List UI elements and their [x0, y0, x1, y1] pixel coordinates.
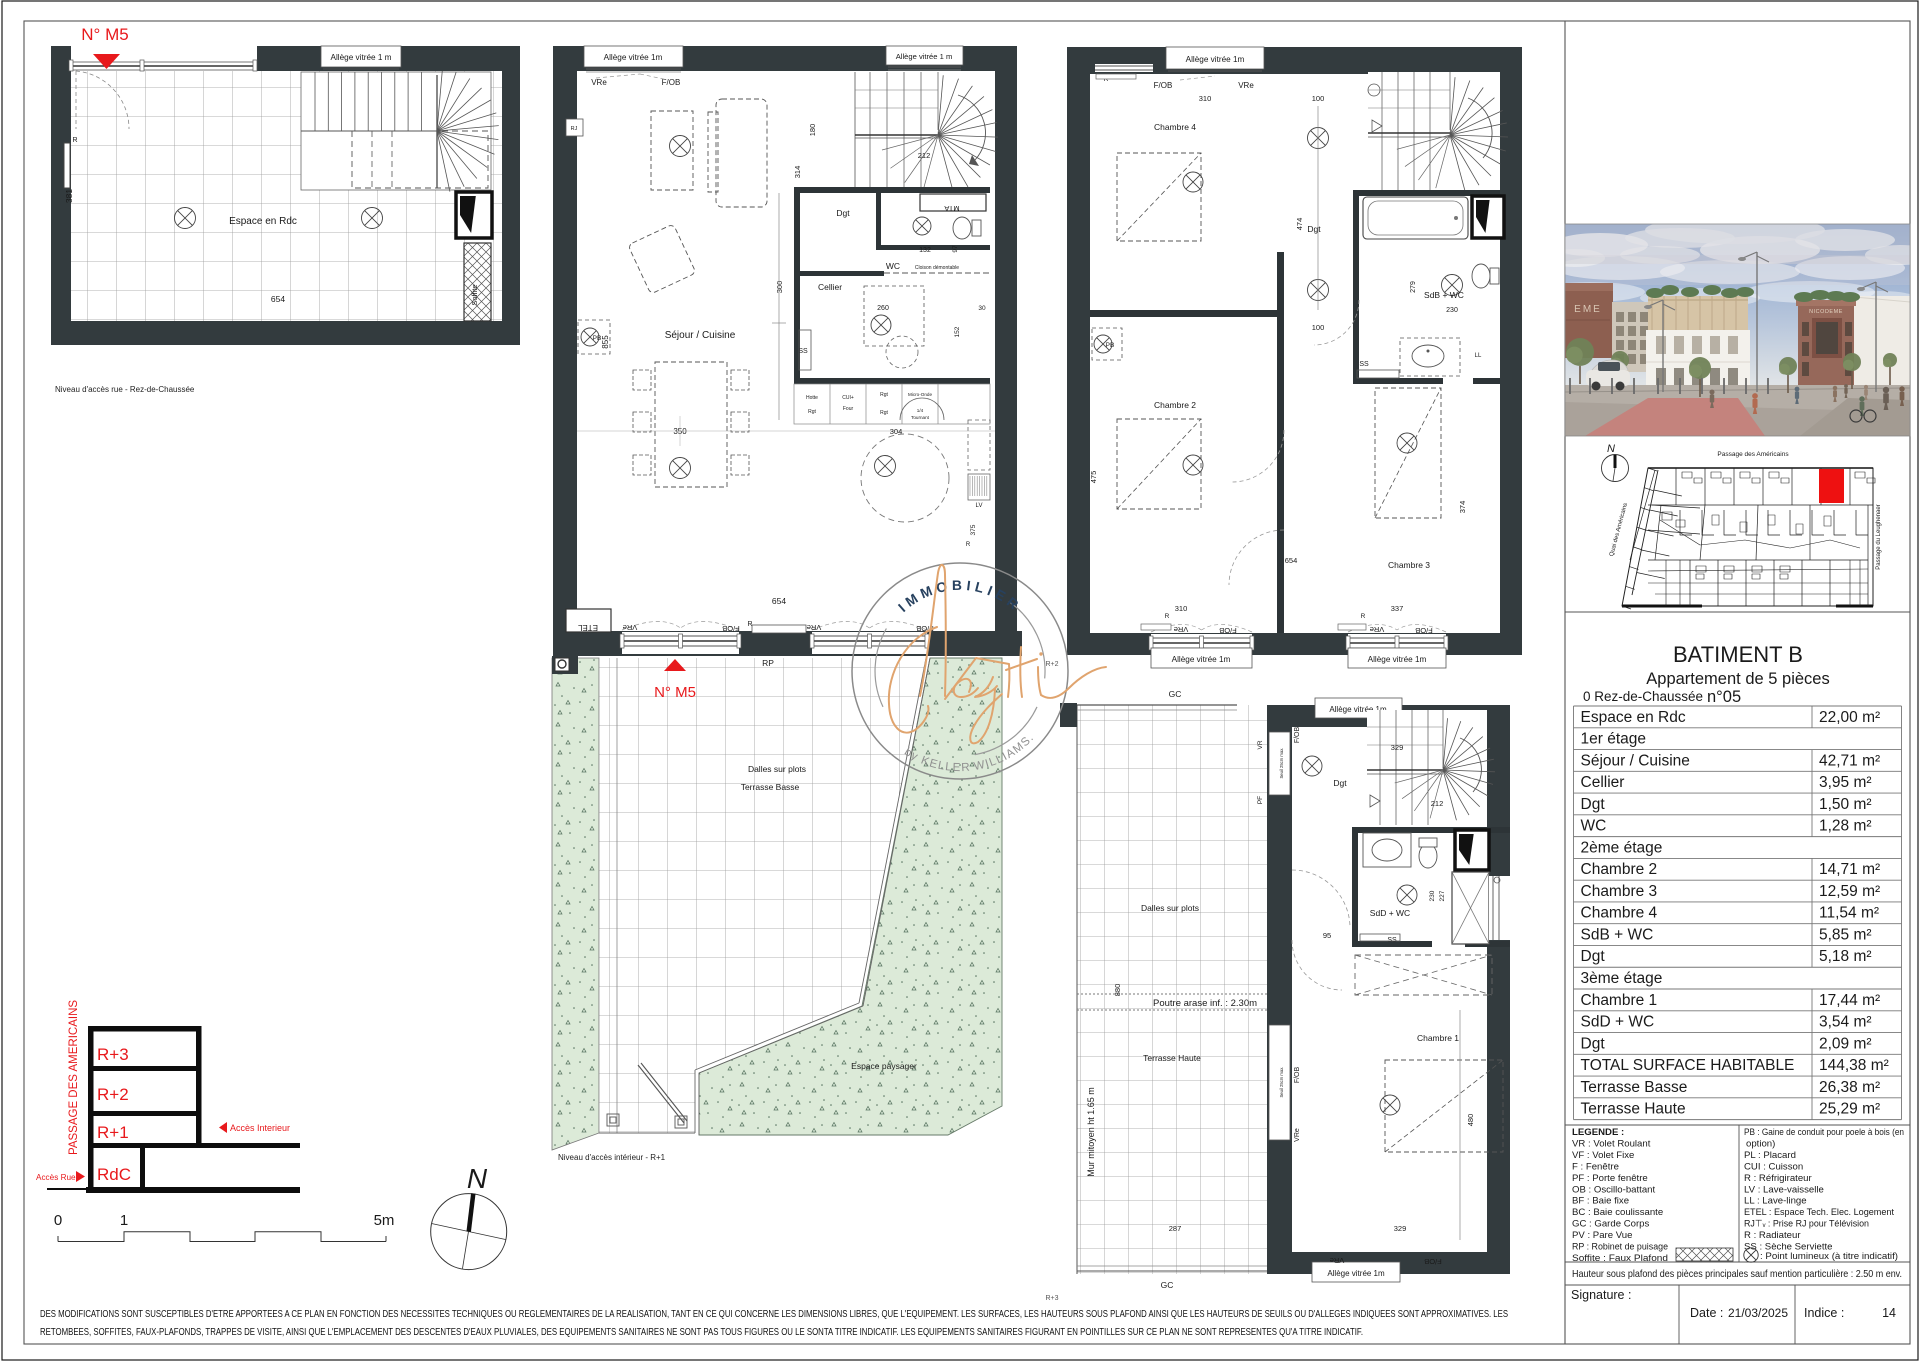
- svg-text:LV: LV: [976, 503, 983, 509]
- svg-text:Mur mitoyen ht 1.65 m: Mur mitoyen ht 1.65 m: [1086, 1087, 1096, 1177]
- svg-text:PB : Gaine de conduit pour poe: PB : Gaine de conduit pour poele à bois …: [1744, 1127, 1904, 1138]
- svg-text:1: 1: [120, 1212, 128, 1229]
- svg-text:F/OB: F/OB: [1219, 626, 1237, 635]
- svg-text:CUI+: CUI+: [842, 395, 854, 401]
- svg-text:PB: PB: [1106, 342, 1115, 349]
- svg-text:Cloison démontable: Cloison démontable: [915, 265, 959, 271]
- svg-text:Dgt: Dgt: [1307, 224, 1321, 234]
- svg-text:Séjour / Cuisine: Séjour / Cuisine: [1581, 752, 1690, 769]
- svg-text:SS: SS: [1387, 937, 1397, 944]
- svg-text:Niveau d'accès rue - Rez-de-Ch: Niveau d'accès rue - Rez-de-Chaussée: [55, 385, 195, 394]
- svg-text:Séjour / Cuisine: Séjour / Cuisine: [665, 330, 736, 341]
- svg-text:WC: WC: [886, 261, 900, 271]
- svg-text:Micro-Onde: Micro-Onde: [908, 392, 932, 397]
- svg-text:279: 279: [1410, 281, 1417, 293]
- svg-text:475: 475: [1089, 471, 1098, 484]
- svg-text:VRe: VRe: [1174, 625, 1189, 634]
- svg-text:: Point lumineux (à titre indi: : Point lumineux (à titre indicatif): [1760, 1250, 1898, 1261]
- svg-text:R+3: R+3: [1045, 1295, 1058, 1302]
- svg-text:97: 97: [952, 245, 959, 253]
- svg-text:Terrasse Basse: Terrasse Basse: [1581, 1079, 1688, 1096]
- svg-text:180: 180: [808, 124, 817, 137]
- svg-text:21/03/2025: 21/03/2025: [1728, 1306, 1788, 1320]
- svg-text:654: 654: [772, 596, 786, 606]
- svg-text:5,85 m²: 5,85 m²: [1819, 926, 1872, 943]
- svg-text:PF : Porte fenêtre: PF : Porte fenêtre: [1572, 1173, 1648, 1184]
- svg-text:SdD + WC: SdD + WC: [1581, 1014, 1655, 1031]
- svg-text:474: 474: [1295, 218, 1304, 231]
- svg-text:GC : Garde Corps: GC : Garde Corps: [1572, 1219, 1650, 1230]
- svg-text:5,18 m²: 5,18 m²: [1819, 948, 1872, 965]
- svg-text:R: R: [72, 137, 77, 144]
- svg-text:F : Fenêtre: F : Fenêtre: [1572, 1161, 1619, 1172]
- svg-text:Dgt: Dgt: [1581, 1035, 1606, 1052]
- svg-text:VRe: VRe: [807, 623, 822, 632]
- svg-text:Dalles sur plots: Dalles sur plots: [1141, 903, 1199, 913]
- svg-text:Accès Rue: Accès Rue: [36, 1173, 76, 1182]
- svg-text:LV : Lave-vaisselle: LV : Lave-vaisselle: [1744, 1184, 1824, 1195]
- svg-text:Chambre 1: Chambre 1: [1581, 992, 1658, 1009]
- svg-text:Seuil 25cm max.: Seuil 25cm max.: [1279, 748, 1284, 779]
- svg-text:Chambre 3: Chambre 3: [1388, 560, 1430, 570]
- svg-text:F/OB: F/OB: [1294, 1067, 1301, 1084]
- svg-text:350: 350: [673, 427, 687, 436]
- svg-text:N: N: [467, 1163, 488, 1194]
- svg-text:30: 30: [978, 305, 986, 312]
- svg-text:Allège vitrée 1 m: Allège vitrée 1 m: [896, 52, 953, 61]
- svg-text:314: 314: [793, 166, 802, 179]
- svg-text:212: 212: [918, 151, 931, 160]
- svg-text:VRe: VRe: [1238, 81, 1254, 90]
- svg-text:VRe: VRe: [1370, 625, 1385, 634]
- svg-text:212: 212: [1431, 799, 1444, 808]
- svg-text:Rgt: Rgt: [808, 409, 816, 415]
- svg-text:R : Réfrigirateur: R : Réfrigirateur: [1744, 1173, 1813, 1184]
- svg-text:DES MODIFICATIONS SONT SUSCEPT: DES MODIFICATIONS SONT SUSCEPTIBLES D'ET…: [40, 1309, 1508, 1320]
- svg-text:480: 480: [1466, 1114, 1475, 1127]
- svg-text:3,95 m²: 3,95 m²: [1819, 774, 1872, 791]
- svg-text:152: 152: [954, 326, 961, 337]
- svg-text:Soffite : Faux Plafond: Soffite : Faux Plafond: [1572, 1253, 1668, 1264]
- svg-text:VR: VR: [1257, 740, 1264, 749]
- svg-text:Dgt: Dgt: [1333, 778, 1347, 788]
- svg-text:Terrasse Haute: Terrasse Haute: [1581, 1101, 1686, 1118]
- svg-text:CUI : Cuisson: CUI : Cuisson: [1744, 1161, 1803, 1172]
- svg-text:Dgt: Dgt: [1581, 948, 1606, 965]
- svg-text:PV : Pare Vue: PV : Pare Vue: [1572, 1230, 1632, 1241]
- svg-text:TOTAL SURFACE HABITABLE: TOTAL SURFACE HABITABLE: [1581, 1057, 1795, 1074]
- svg-text:Appartement de 5 pièces: Appartement de 5 pièces: [1646, 670, 1829, 688]
- svg-text:14,71 m²: 14,71 m²: [1819, 861, 1880, 878]
- svg-text:VRe: VRe: [591, 78, 607, 87]
- svg-text:OB : Oscillo-battant: OB : Oscillo-battant: [1572, 1184, 1656, 1195]
- svg-text:Tournant: Tournant: [911, 415, 930, 420]
- svg-text:230: 230: [1429, 890, 1436, 901]
- svg-text:0 Rez-de-Chaussée: 0 Rez-de-Chaussée: [1583, 689, 1703, 704]
- svg-text:0: 0: [54, 1212, 62, 1229]
- svg-text:F/OB: F/OB: [1415, 626, 1433, 635]
- svg-text:Hauteur sous plafond des pièce: Hauteur sous plafond des pièces principa…: [1572, 1269, 1902, 1280]
- svg-text:R+2: R+2: [97, 1085, 129, 1104]
- svg-text:310: 310: [1199, 94, 1212, 103]
- svg-text:SS: SS: [1359, 361, 1369, 368]
- svg-text:MTA: MTA: [944, 204, 959, 213]
- svg-text:Dgt: Dgt: [836, 208, 850, 218]
- svg-text:654: 654: [271, 294, 285, 304]
- svg-text:880: 880: [1113, 984, 1122, 997]
- svg-text:GC: GC: [1169, 689, 1182, 699]
- svg-text:Rgt: Rgt: [880, 392, 888, 398]
- svg-text:SdD + WC: SdD + WC: [1370, 908, 1410, 918]
- svg-text:Chambre 4: Chambre 4: [1154, 122, 1196, 132]
- svg-text:R: R: [1165, 613, 1170, 620]
- svg-text:F/OB: F/OB: [662, 78, 681, 87]
- svg-text:SdB + WC: SdB + WC: [1581, 926, 1654, 943]
- svg-text:Chambre 3: Chambre 3: [1581, 883, 1658, 900]
- svg-text:RJ: RJ: [571, 126, 578, 132]
- svg-text:Passage du Leughenaer: Passage du Leughenaer: [1876, 504, 1882, 569]
- svg-text:1er étage: 1er étage: [1581, 731, 1647, 748]
- svg-text:GC: GC: [1161, 1280, 1174, 1290]
- svg-text:R: R: [1361, 613, 1366, 620]
- svg-text:SS: SS: [798, 348, 808, 355]
- svg-text:329: 329: [1394, 1224, 1407, 1233]
- svg-text:BATIMENT B: BATIMENT B: [1673, 642, 1803, 667]
- svg-text:N: N: [1607, 443, 1615, 455]
- svg-text:230: 230: [1446, 307, 1458, 314]
- svg-text:11,54 m²: 11,54 m²: [1819, 905, 1879, 922]
- svg-text:374: 374: [1458, 501, 1467, 514]
- svg-text:VRe: VRe: [1330, 1256, 1345, 1265]
- svg-text:Espace en Rdc: Espace en Rdc: [1581, 709, 1686, 726]
- svg-text:95: 95: [1323, 931, 1331, 940]
- svg-text:Allège vitrée 1m: Allège vitrée 1m: [1172, 655, 1231, 664]
- svg-text:Poutre arase inf. : 2.30m: Poutre arase inf. : 2.30m: [1153, 998, 1257, 1009]
- svg-text:R : Radiateur: R : Radiateur: [1744, 1230, 1801, 1241]
- svg-text:WC: WC: [1581, 818, 1607, 835]
- svg-text:ETEL: ETEL: [577, 623, 598, 632]
- svg-text:RJ⊤ᵥ : Prise RJ pour Télévisio: RJ⊤ᵥ : Prise RJ pour Télévision: [1744, 1219, 1869, 1230]
- svg-text:Terrasse Basse: Terrasse Basse: [741, 782, 800, 792]
- svg-text:1/4: 1/4: [917, 408, 924, 413]
- svg-text:Allège vitrée 1m: Allège vitrée 1m: [1368, 655, 1427, 664]
- svg-text:Allège vitrée 1 m: Allège vitrée 1 m: [331, 53, 392, 62]
- svg-text:132: 132: [919, 247, 931, 254]
- svg-text:2,09 m²: 2,09 m²: [1819, 1035, 1872, 1052]
- svg-text:Chambre 1: Chambre 1: [1417, 1033, 1459, 1043]
- svg-text:ETEL : Espace Tech. Elec. Loge: ETEL : Espace Tech. Elec. Logement: [1744, 1207, 1894, 1218]
- svg-text:381: 381: [64, 189, 74, 203]
- svg-text:Dalles sur plots: Dalles sur plots: [748, 764, 806, 774]
- svg-text:RP : Robinet de puisage: RP : Robinet de puisage: [1572, 1242, 1668, 1253]
- svg-text:F/OB: F/OB: [1294, 727, 1301, 744]
- svg-text:337: 337: [1391, 604, 1404, 613]
- svg-text:144,38 m²: 144,38 m²: [1819, 1057, 1889, 1074]
- svg-text:287: 287: [1169, 1224, 1182, 1233]
- svg-text:Accès Interieur: Accès Interieur: [230, 1123, 290, 1133]
- svg-text:Signature :: Signature :: [1571, 1288, 1631, 1302]
- svg-text:Seuil 25cm max.: Seuil 25cm max.: [1279, 1067, 1284, 1098]
- svg-text:Allège vitrée 1m: Allège vitrée 1m: [604, 53, 663, 62]
- svg-text:855: 855: [601, 335, 610, 349]
- svg-text:SdB + WC: SdB + WC: [1424, 290, 1464, 300]
- svg-text:BF : Baie fixe: BF : Baie fixe: [1572, 1196, 1629, 1207]
- svg-text:310: 310: [1175, 604, 1188, 613]
- svg-text:PF: PF: [1257, 796, 1264, 804]
- svg-text:RP: RP: [762, 658, 774, 668]
- svg-text:EME: EME: [1574, 304, 1602, 315]
- svg-text:Date :: Date :: [1690, 1306, 1723, 1320]
- svg-text:VF : Volet Fixe: VF : Volet Fixe: [1572, 1150, 1634, 1161]
- svg-text:Terrasse Haute: Terrasse Haute: [1143, 1053, 1201, 1063]
- svg-text:PL : Placard: PL : Placard: [1744, 1150, 1796, 1161]
- svg-text:Chambre 2: Chambre 2: [1581, 861, 1658, 878]
- svg-text:Dgt: Dgt: [1581, 796, 1606, 813]
- svg-text:LEGENDE :: LEGENDE :: [1572, 1127, 1624, 1138]
- svg-text:Espace paysager: Espace paysager: [851, 1061, 917, 1071]
- svg-text:Chambre 4: Chambre 4: [1581, 905, 1658, 922]
- svg-text:n°05: n°05: [1707, 688, 1741, 706]
- svg-text:R+3: R+3: [97, 1045, 129, 1064]
- svg-text:227: 227: [1439, 890, 1446, 901]
- svg-text:375: 375: [970, 524, 977, 535]
- svg-text:3ème étage: 3ème étage: [1581, 970, 1663, 987]
- svg-text:654: 654: [1285, 556, 1298, 565]
- svg-text:300: 300: [775, 281, 784, 294]
- svg-text:Soffite: Soffite: [470, 284, 479, 305]
- svg-text:Cellier: Cellier: [818, 282, 842, 292]
- svg-text:LL : Lave-linge: LL : Lave-linge: [1744, 1196, 1807, 1207]
- svg-text:F/OB: F/OB: [1154, 81, 1173, 90]
- svg-text:25,29 m²: 25,29 m²: [1819, 1101, 1880, 1118]
- svg-text:VRe: VRe: [623, 623, 638, 632]
- svg-text:RETOMBEES, SOFFITES, FAUX-PLAF: RETOMBEES, SOFFITES, FAUX-PLAFONDS, TRAP…: [40, 1327, 1363, 1338]
- svg-text:26,38 m²: 26,38 m²: [1819, 1079, 1880, 1096]
- svg-text:12,59 m²: 12,59 m²: [1819, 883, 1880, 900]
- svg-text:100: 100: [1312, 323, 1325, 332]
- svg-text:F/OB: F/OB: [1424, 1257, 1442, 1266]
- svg-text:Allège vitrée 1m: Allège vitrée 1m: [1186, 55, 1245, 64]
- svg-text:VRe: VRe: [1294, 1128, 1301, 1142]
- svg-text:F/OB: F/OB: [722, 624, 740, 633]
- svg-text:304: 304: [890, 427, 903, 436]
- svg-text:14: 14: [1882, 1306, 1896, 1320]
- svg-text:Niveau d'accès intérieur - R+1: Niveau d'accès intérieur - R+1: [558, 1153, 666, 1162]
- svg-text:3,54 m²: 3,54 m²: [1819, 1014, 1872, 1031]
- svg-text:Passage des Américains: Passage des Américains: [1717, 451, 1789, 458]
- svg-text:Indice :: Indice :: [1804, 1306, 1844, 1320]
- svg-text:2ème étage: 2ème étage: [1581, 839, 1663, 856]
- svg-text:R: R: [966, 542, 971, 548]
- svg-text:Allège vitrée 1m: Allège vitrée 1m: [1327, 1269, 1385, 1278]
- svg-text:17,44 m²: 17,44 m²: [1819, 992, 1880, 1009]
- svg-text:1,50 m²: 1,50 m²: [1819, 796, 1872, 813]
- svg-text:42,71 m²: 42,71 m²: [1819, 752, 1880, 769]
- svg-text:R+1: R+1: [97, 1123, 129, 1142]
- svg-text:Hotte: Hotte: [806, 395, 818, 401]
- svg-text:Rgt: Rgt: [880, 410, 888, 416]
- svg-text:LL: LL: [1475, 353, 1482, 359]
- svg-text:option): option): [1746, 1138, 1775, 1149]
- svg-text:VR : Volet Roulant: VR : Volet Roulant: [1572, 1138, 1651, 1149]
- svg-text:22,00 m²: 22,00 m²: [1819, 709, 1880, 726]
- svg-text:100: 100: [1312, 94, 1325, 103]
- svg-text:Espace en Rdc: Espace en Rdc: [229, 216, 297, 227]
- svg-text:RdC: RdC: [97, 1165, 131, 1184]
- svg-text:Chambre 2: Chambre 2: [1154, 400, 1196, 410]
- svg-text:R+2: R+2: [1045, 661, 1058, 668]
- svg-text:5m: 5m: [374, 1212, 395, 1229]
- svg-text:260: 260: [877, 305, 889, 312]
- svg-text:NICODEME: NICODEME: [1809, 309, 1843, 315]
- svg-text:Cellier: Cellier: [1581, 774, 1625, 791]
- svg-text:1,28 m²: 1,28 m²: [1819, 818, 1872, 835]
- svg-text:N° M5: N° M5: [654, 684, 696, 701]
- svg-text:BC : Baie coulissante: BC : Baie coulissante: [1572, 1207, 1663, 1218]
- svg-text:329: 329: [1391, 743, 1404, 752]
- svg-text:Four: Four: [843, 406, 854, 412]
- svg-text:N° M5: N° M5: [81, 25, 128, 44]
- svg-text:PASSAGE DES AMERICAINS: PASSAGE DES AMERICAINS: [68, 1000, 80, 1155]
